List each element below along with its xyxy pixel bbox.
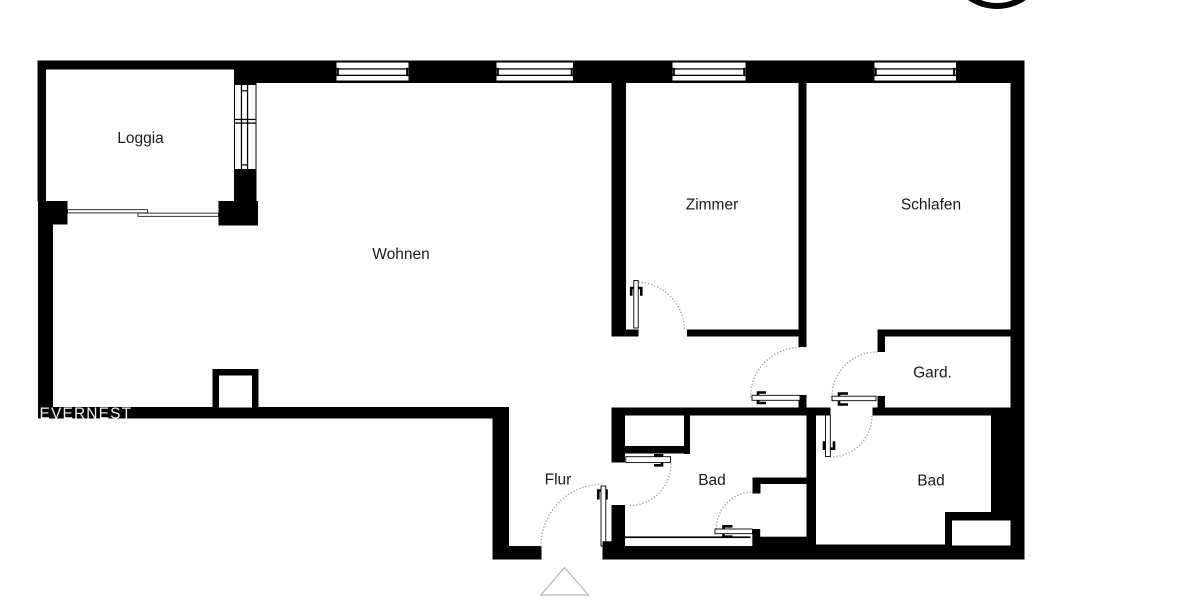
svg-text:Loggia: Loggia (117, 130, 164, 147)
svg-text:Wohnen: Wohnen (372, 246, 429, 263)
svg-text:EVERNEST: EVERNEST (40, 405, 133, 422)
svg-text:Gard.: Gard. (913, 364, 952, 381)
svg-text:Zimmer: Zimmer (686, 196, 739, 213)
svg-text:Bad: Bad (917, 472, 945, 489)
svg-text:Schlafen: Schlafen (901, 196, 961, 213)
svg-text:Flur: Flur (545, 471, 572, 488)
svg-text:Bad: Bad (698, 472, 726, 489)
